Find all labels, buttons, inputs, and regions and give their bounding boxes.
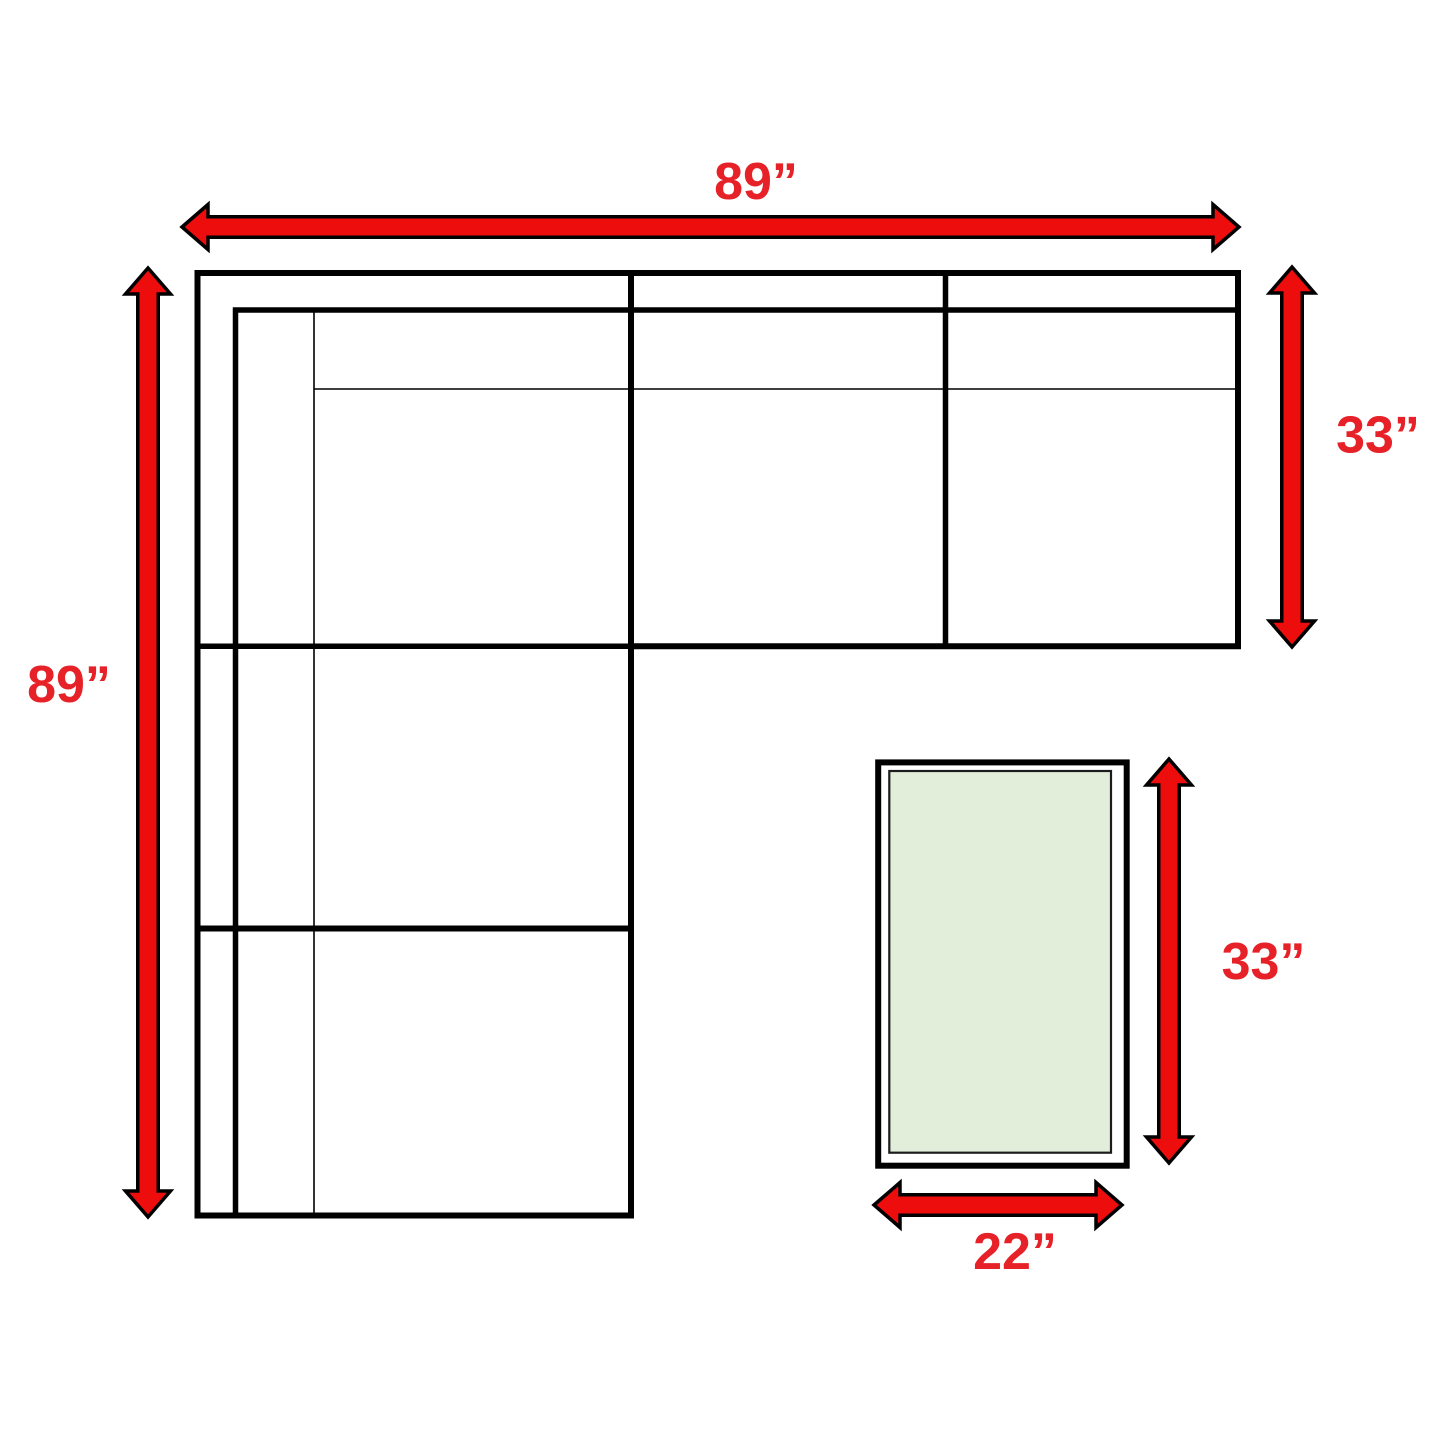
svg-text:33”: 33” (1336, 407, 1420, 465)
svg-text:89”: 89” (27, 656, 111, 714)
svg-text:22”: 22” (973, 1223, 1057, 1281)
svg-text:33”: 33” (1222, 933, 1306, 991)
svg-text:89”: 89” (714, 153, 798, 211)
